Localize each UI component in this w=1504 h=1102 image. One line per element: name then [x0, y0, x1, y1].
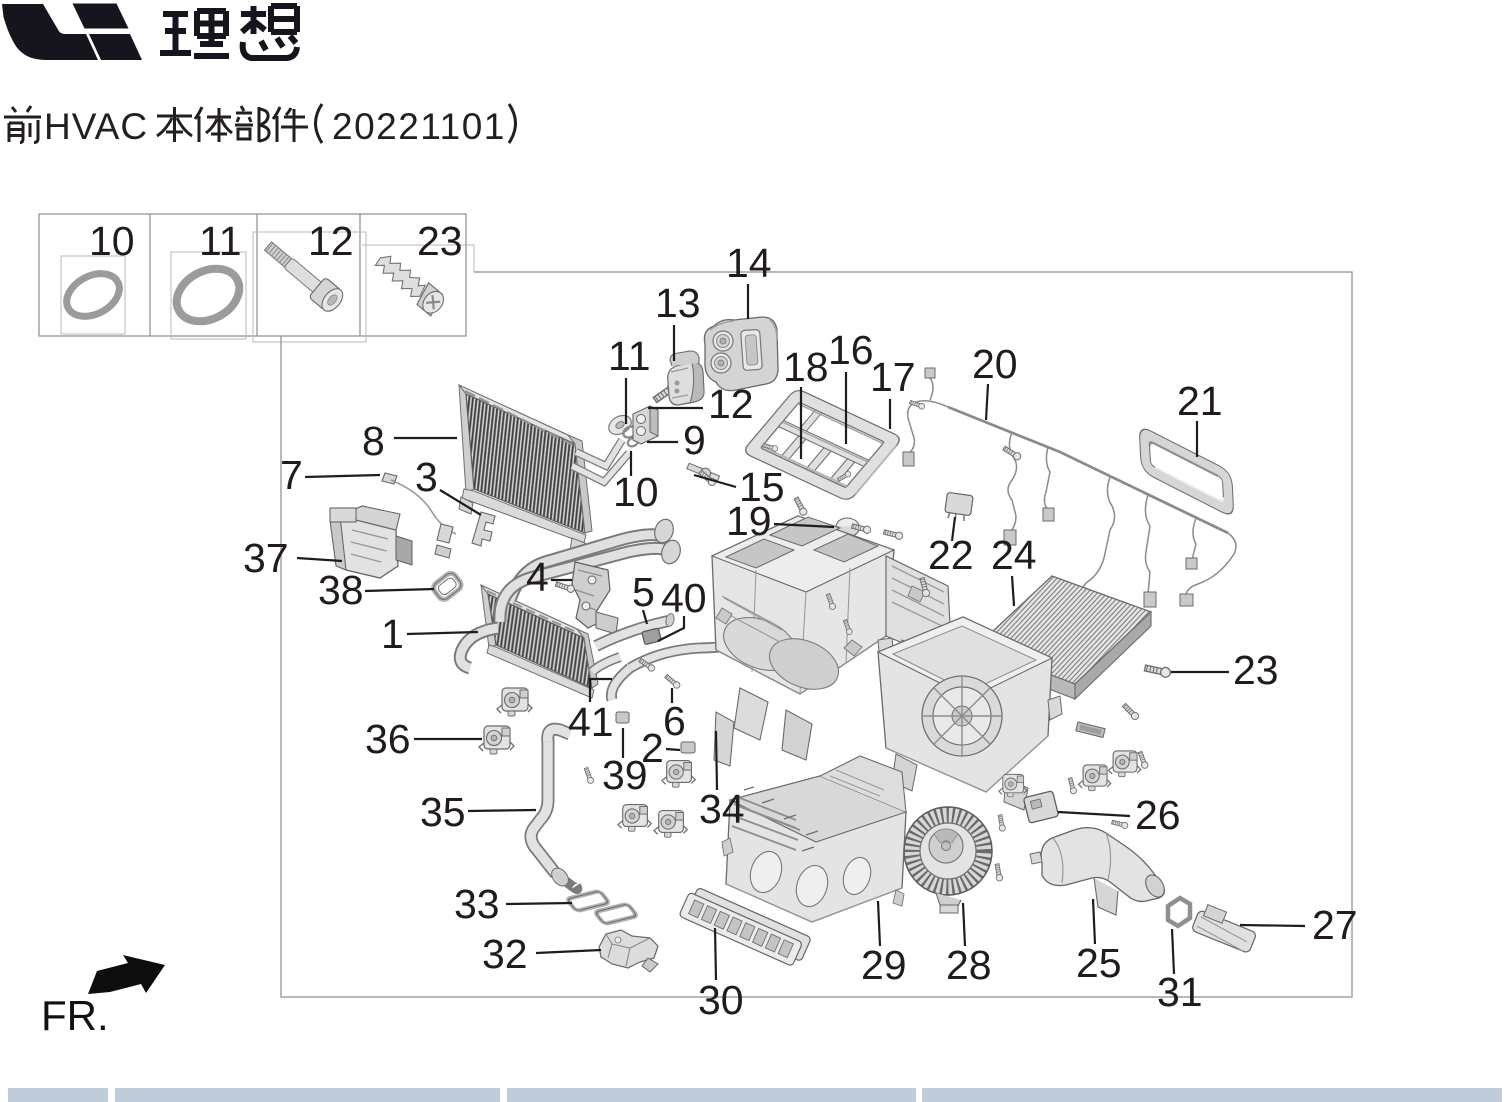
svg-text:7: 7 [280, 452, 303, 498]
svg-text:34: 34 [699, 786, 745, 832]
svg-text:16: 16 [828, 327, 874, 373]
svg-text:11: 11 [608, 333, 651, 379]
svg-text:22: 22 [928, 532, 974, 578]
svg-text:23: 23 [1233, 647, 1279, 693]
svg-text:27: 27 [1312, 902, 1358, 948]
svg-text:37: 37 [243, 535, 289, 581]
svg-text:14: 14 [726, 240, 772, 286]
svg-text:1: 1 [381, 611, 404, 657]
svg-text:20221101: 20221101 [332, 106, 506, 147]
svg-text:18: 18 [783, 344, 829, 390]
svg-text:5: 5 [632, 569, 655, 615]
svg-text:10: 10 [89, 218, 135, 264]
svg-text:32: 32 [482, 931, 528, 977]
svg-text:26: 26 [1135, 792, 1181, 838]
svg-text:21: 21 [1177, 378, 1223, 424]
svg-text:8: 8 [362, 418, 385, 464]
svg-text:12: 12 [708, 381, 754, 427]
svg-text:3: 3 [415, 454, 438, 500]
svg-text:28: 28 [946, 942, 992, 988]
svg-text:12: 12 [308, 218, 354, 264]
svg-text:13: 13 [655, 280, 701, 326]
svg-text:24: 24 [991, 532, 1037, 578]
svg-text:25: 25 [1076, 940, 1122, 986]
svg-text:9: 9 [683, 417, 706, 463]
svg-text:36: 36 [365, 716, 411, 762]
svg-text:30: 30 [698, 977, 744, 1023]
svg-text:23: 23 [417, 218, 463, 264]
svg-text:10: 10 [613, 469, 659, 515]
svg-text:20: 20 [972, 341, 1018, 387]
svg-text:31: 31 [1157, 969, 1203, 1015]
svg-text:6: 6 [663, 698, 686, 744]
svg-text:FR.: FR. [41, 992, 109, 1039]
svg-text:41: 41 [568, 699, 614, 745]
svg-text:17: 17 [870, 354, 916, 400]
svg-text:33: 33 [454, 881, 500, 927]
svg-text:4: 4 [526, 554, 549, 600]
svg-text:38: 38 [318, 567, 364, 613]
svg-text:40: 40 [661, 575, 707, 621]
svg-text:35: 35 [420, 789, 466, 835]
svg-text:HVAC: HVAC [44, 106, 148, 147]
svg-text:2: 2 [641, 725, 664, 771]
svg-text:11: 11 [199, 218, 242, 264]
svg-text:19: 19 [726, 498, 772, 544]
svg-text:29: 29 [861, 942, 907, 988]
